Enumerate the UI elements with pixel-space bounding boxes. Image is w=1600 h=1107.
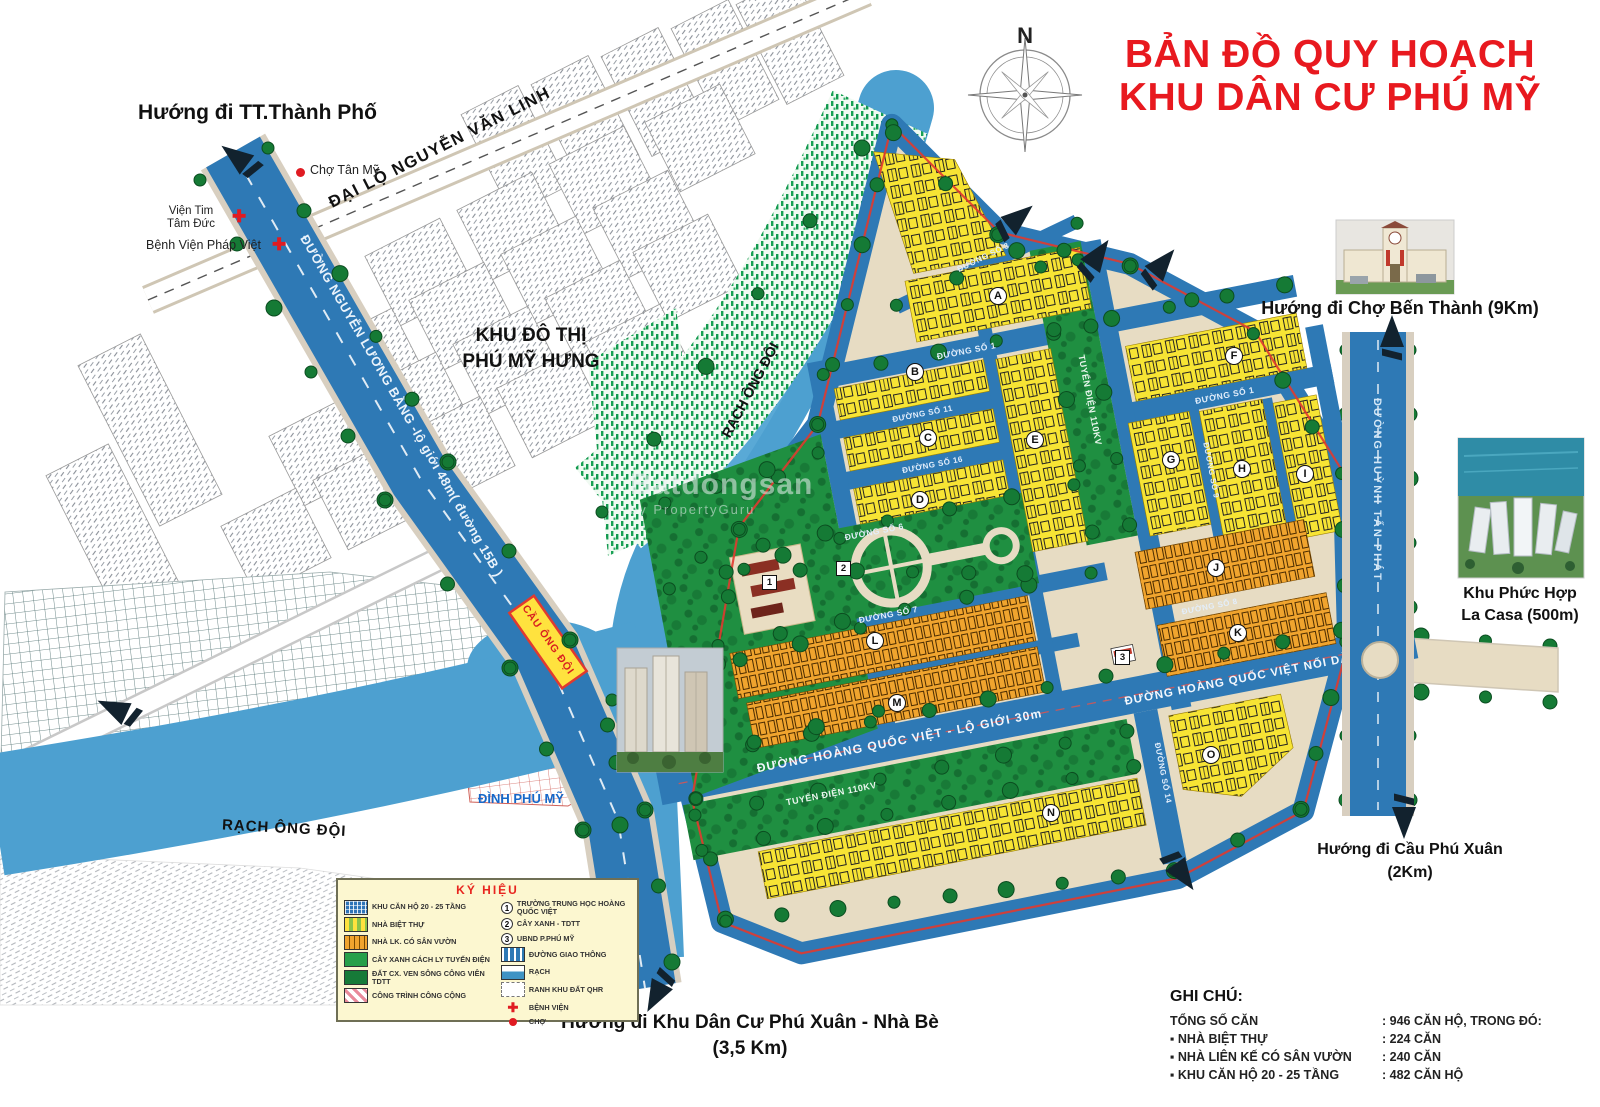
tree-icon [194,174,206,186]
watermark: Batdongsan by PropertyGuru [630,468,813,517]
note-value: : 224 CĂN [1382,1032,1441,1046]
note-row: TỔNG SỐ CĂN: 946 CĂN HỘ, TRONG ĐÓ: [1170,1014,1590,1028]
legend-number-badge: 2 [501,918,513,930]
note-value: : 240 CĂN [1382,1050,1441,1064]
hospital-cross2-icon: ✚ [272,236,286,253]
legend-label: NHÀ BIỆT THỰ [372,921,424,929]
legend-item: 3UBND P.PHÚ MỸ [501,933,631,945]
canal-swatch-icon [501,965,525,980]
arrow-htp-north-icon [1380,315,1404,360]
note-row: KHU CĂN HỘ 20 - 25 TẦNG: 482 CĂN HỘ [1170,1068,1590,1082]
legend-item: RẠCH [501,965,631,980]
block-marker-E: E [1026,431,1044,449]
tree-icon [564,634,576,646]
legend-label: KHU CĂN HỘ 20 - 25 TẦNG [372,903,466,911]
legend-item: 2CÂY XANH - TDTT [501,918,631,930]
tree-icon [1543,695,1557,709]
villa-swatch-icon [344,917,368,932]
legend-item: ĐẤT CX. VEN SÔNG CÔNG VIÊN TDTT [344,970,495,986]
map-title-line2: KHU DÂN CƯ PHÚ MỸ [1080,76,1580,119]
rowhouse-swatch-icon [344,935,368,950]
apartment-swatch-icon [344,900,368,915]
la-casa-line2: La Casa (500m) [1440,605,1600,627]
hospital-cross-icon: ✚ [501,1000,525,1016]
map-title-line1: BẢN ĐỒ QUY HOẠCH [1080,33,1580,76]
tree-icon [502,544,516,558]
ben-thanh-photo [1336,220,1454,294]
legend-label: CÂY XANH CÁCH LY TUYẾN ĐIỆN [372,956,490,964]
tree-icon [266,300,282,316]
la-casa-photo [1458,438,1584,578]
legend-label: RẠCH [529,968,550,976]
tree-icon [332,266,348,282]
block-marker-G: G [1162,451,1180,469]
tree-icon [504,662,516,674]
block-marker-L: L [866,632,884,650]
legend-item: KHU CĂN HỘ 20 - 25 TẦNG [344,900,495,915]
tree-icon [803,214,817,228]
notes-section: GHI CHÚ: TỔNG SỐ CĂN: 946 CĂN HỘ, TRONG … [1170,988,1590,1082]
vien-tim-label: Viện Tim Tâm Đức [154,205,228,231]
huynh-tan-phat-label: ĐƯỜNG HUỲNH TẤN PHÁT [1371,398,1384,582]
khu-do-thi-line1: KHU ĐÔ THỊ [425,323,637,349]
vien-tim-line1: Viện Tim [154,205,228,218]
block-marker-J: J [1207,559,1225,577]
tree-icon [606,694,618,706]
compass-north-label: N [1017,23,1033,48]
direction-cau-phu-xuan-label: Hướng đi Cầu Phú Xuân (2Km) [1295,838,1525,884]
tree-icon [854,140,870,156]
legend-label: RANH KHU ĐẤT QHR [529,986,603,994]
legend-number-badge: 3 [501,933,513,945]
legend-label: NHÀ LK. CÓ SÂN VƯỜN [372,938,456,946]
benh-vien-phap-viet-label: Bệnh Viện Pháp Việt [146,238,261,252]
hospital-cross-icon: ✚ [232,208,246,225]
cho-tan-my-label: Chợ Tân Mỹ [310,163,379,177]
note-value: : 482 CĂN HỘ [1382,1068,1463,1082]
tree-icon [442,456,454,468]
note-label: NHÀ BIỆT THỰ [1170,1032,1382,1046]
direction-ben-thanh-label: Hướng đi Chợ Bến Thành (9Km) [1255,298,1545,319]
tree-icon [305,366,317,378]
direction-city-label: Hướng đi TT.Thành Phố [138,101,377,125]
vien-tim-line2: Tâm Đức [154,218,228,231]
compass-rose: N [968,23,1082,152]
green-buffer-swatch-icon [344,952,368,967]
road-swatch-icon [501,947,525,962]
khu-do-thi-label: KHU ĐÔ THỊ PHÚ MỸ HƯNG [425,323,637,375]
tree-icon [441,577,455,591]
legend-item: CÔNG TRÌNH CÔNG CỘNG [344,988,495,1003]
tree-icon [370,330,382,342]
block-marker-B: B [906,363,924,381]
la-casa-line1: Khu Phức Hợp [1440,583,1600,605]
legend-label: CHỢ [529,1018,546,1026]
note-label: TỔNG SỐ CĂN [1170,1014,1382,1028]
block-marker-O: O [1202,746,1220,764]
tree-icon [698,358,714,374]
site-marker-1: 1 [762,575,777,590]
tree-icon [752,288,764,300]
legend-item: RANH KHU ĐẤT QHR [501,982,631,997]
tree-icon [262,142,274,154]
legend-label: ĐƯỜNG GIAO THÔNG [529,951,607,959]
block-marker-M: M [888,694,906,712]
cau-phu-xuan-line1: Hướng đi Cầu Phú Xuân [1295,838,1525,861]
site-marker-2: 2 [836,561,851,576]
note-row: NHÀ BIỆT THỰ: 224 CĂN [1170,1032,1590,1046]
legend: KÝ HIỆU KHU CĂN HỘ 20 - 25 TẦNG NHÀ BIỆT… [336,878,639,1022]
direction-la-casa-label: Khu Phức Hợp La Casa (500m) [1440,583,1600,627]
watermark-line1: Batdongsan [630,468,813,502]
legend-item: NHÀ LK. CÓ SÂN VƯỜN [344,935,495,950]
note-row: NHÀ LIÊN KẾ CÓ SÂN VƯỜN: 240 CĂN [1170,1050,1590,1064]
note-label: KHU CĂN HỘ 20 - 25 TẦNG [1170,1068,1382,1082]
legend-label: UBND P.PHÚ MỸ [517,935,574,943]
block-marker-K: K [1229,624,1247,642]
legend-label: ĐẤT CX. VEN SÔNG CÔNG VIÊN TDTT [372,970,495,986]
legend-item: NHÀ BIỆT THỰ [344,917,495,932]
block-marker-H: H [1233,460,1251,478]
tree-icon [1413,684,1429,700]
legend-item: ✚BỆNH VIỆN [501,1000,631,1016]
market-dot-icon [501,1018,525,1026]
tree-icon [297,204,311,218]
dinh-phu-my-label: ĐÌNH PHÚ MỸ [478,791,564,806]
note-label: NHÀ LIÊN KẾ CÓ SÂN VƯỜN [1170,1050,1382,1064]
legend-label: CÔNG TRÌNH CÔNG CỘNG [372,992,466,1000]
block-marker-F: F [1225,347,1243,365]
legend-number-badge: 1 [501,902,513,914]
kdc-phu-xuan-line2: (3,5 Km) [495,1036,1005,1062]
watermark-line2: by PropertyGuru [630,502,813,517]
market-dot-icon [296,168,305,177]
huynh-tan-phat-road: ĐƯỜNG HUỲNH TẤN PHÁT [1342,332,1414,816]
khu-do-thi-line2: PHÚ MỸ HƯNG [425,349,637,375]
tree-icon [379,494,391,506]
tree-icon [639,804,651,816]
block-marker-N: N [1042,804,1060,822]
tree-icon [596,506,608,518]
block-marker-D: D [911,491,929,509]
tree-icon [652,879,666,893]
public-works-swatch-icon [344,988,368,1003]
legend-label: BỆNH VIỆN [529,1004,569,1012]
legend-label: TRƯỜNG TRUNG HỌC HOÀNG QUỐC VIỆT [517,900,631,916]
legend-item: CHỢ [501,1018,631,1026]
map-page: ĐƯỜNG NGUYỄN LƯƠNG BẰNG -lộ giới 48m( đư… [0,0,1600,1107]
riverside-green-swatch-icon [344,970,368,985]
tree-icon [601,718,615,732]
boundary-swatch-icon [501,982,525,997]
block-marker-A: A [989,287,1007,305]
arrow-phu-xuan-icon [1392,794,1416,839]
legend-item: CÂY XANH CÁCH LY TUYẾN ĐIỆN [344,952,495,967]
map-title: BẢN ĐỒ QUY HOẠCH KHU DÂN CƯ PHÚ MỸ [1080,33,1580,119]
cau-phu-xuan-line2: (2Km) [1295,861,1525,884]
tree-icon [577,824,589,836]
tree-icon [664,954,680,970]
legend-label: CÂY XANH - TDTT [517,920,580,928]
tree-icon [612,817,628,833]
tree-icon [540,742,554,756]
junction-roundabout [1362,642,1398,678]
legend-item: 1TRƯỜNG TRUNG HỌC HOÀNG QUỐC VIỆT [501,900,631,916]
notes-title: GHI CHÚ: [1170,988,1590,1006]
site-marker-3: 3 [1115,650,1130,665]
tree-icon [341,429,355,443]
legend-title: KÝ HIỆU [344,883,631,897]
block-marker-C: C [919,429,937,447]
tree-icon [647,432,661,446]
apartment-towers-photo [617,648,723,772]
note-value: : 946 CĂN HỘ, TRONG ĐÓ: [1382,1014,1542,1028]
legend-item: ĐƯỜNG GIAO THÔNG [501,947,631,962]
planning-map-canvas: ĐƯỜNG NGUYỄN LƯƠNG BẰNG -lộ giới 48m( đư… [0,0,1600,1107]
tree-icon [405,392,419,406]
block-marker-I: I [1296,465,1314,483]
tree-icon [1480,691,1492,703]
